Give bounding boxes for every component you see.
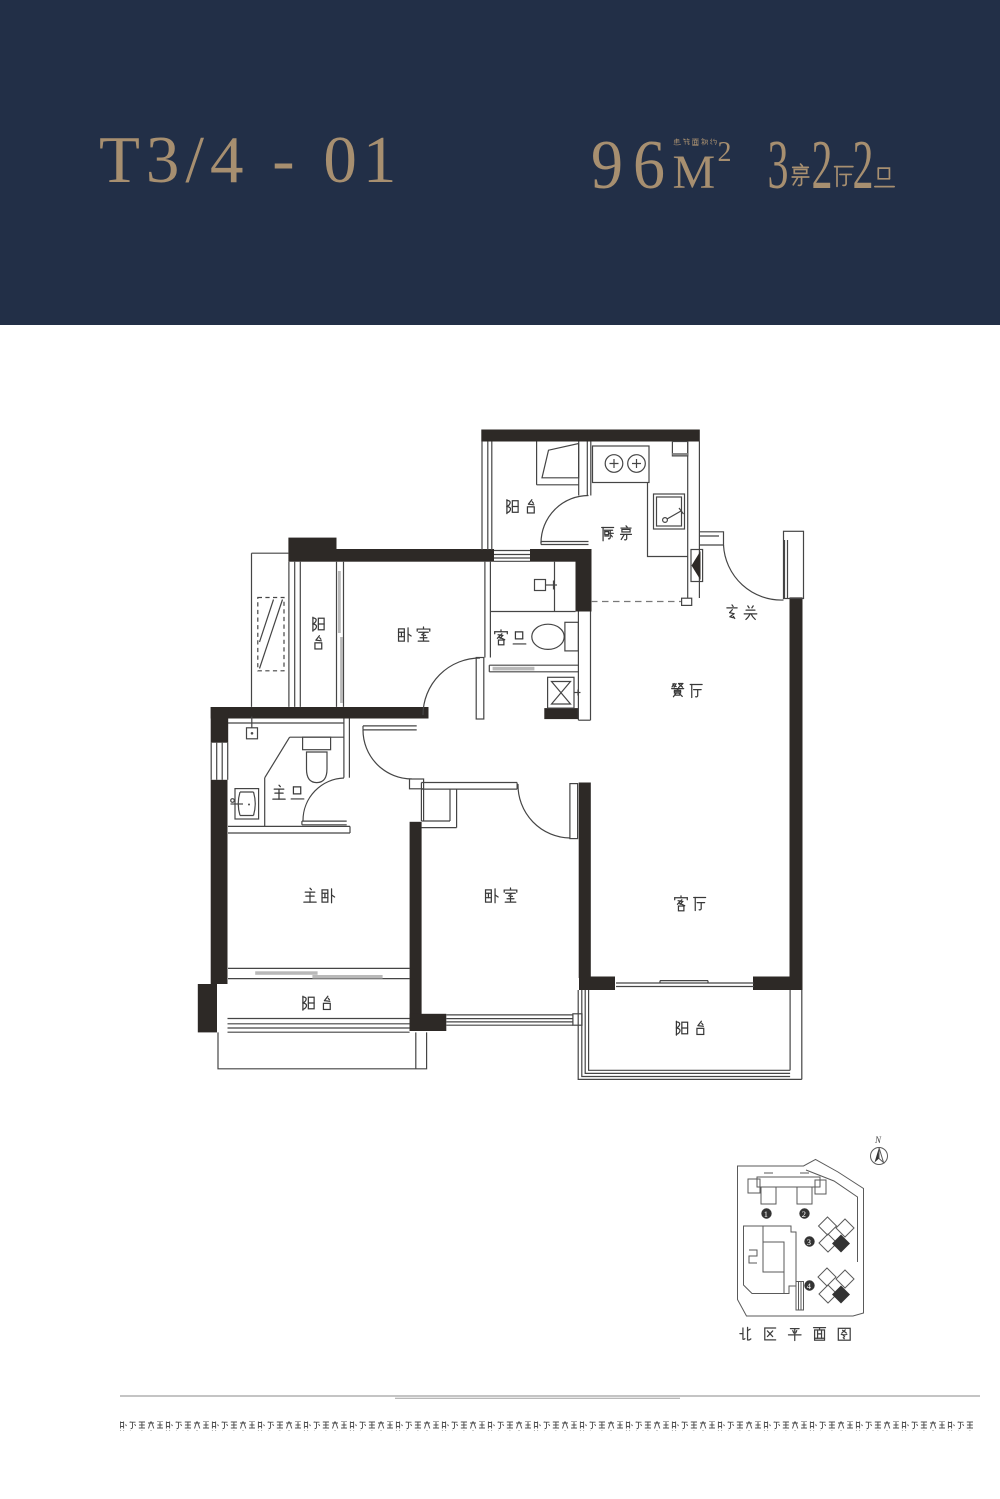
svg-text:N: N <box>874 1135 882 1145</box>
svg-text:9: 9 <box>591 127 623 204</box>
svg-text:2: 2 <box>718 137 732 168</box>
svg-text:T3/4 - 01: T3/4 - 01 <box>99 123 402 197</box>
svg-text:2: 2 <box>812 127 833 204</box>
svg-text:6: 6 <box>633 127 665 204</box>
svg-text:3: 3 <box>807 1237 811 1247</box>
svg-text:M: M <box>673 146 716 199</box>
svg-text:2: 2 <box>853 127 874 204</box>
svg-text:2: 2 <box>802 1209 806 1219</box>
svg-text:3: 3 <box>768 127 789 204</box>
svg-text:1: 1 <box>764 1209 768 1219</box>
svg-text:4: 4 <box>807 1281 812 1291</box>
